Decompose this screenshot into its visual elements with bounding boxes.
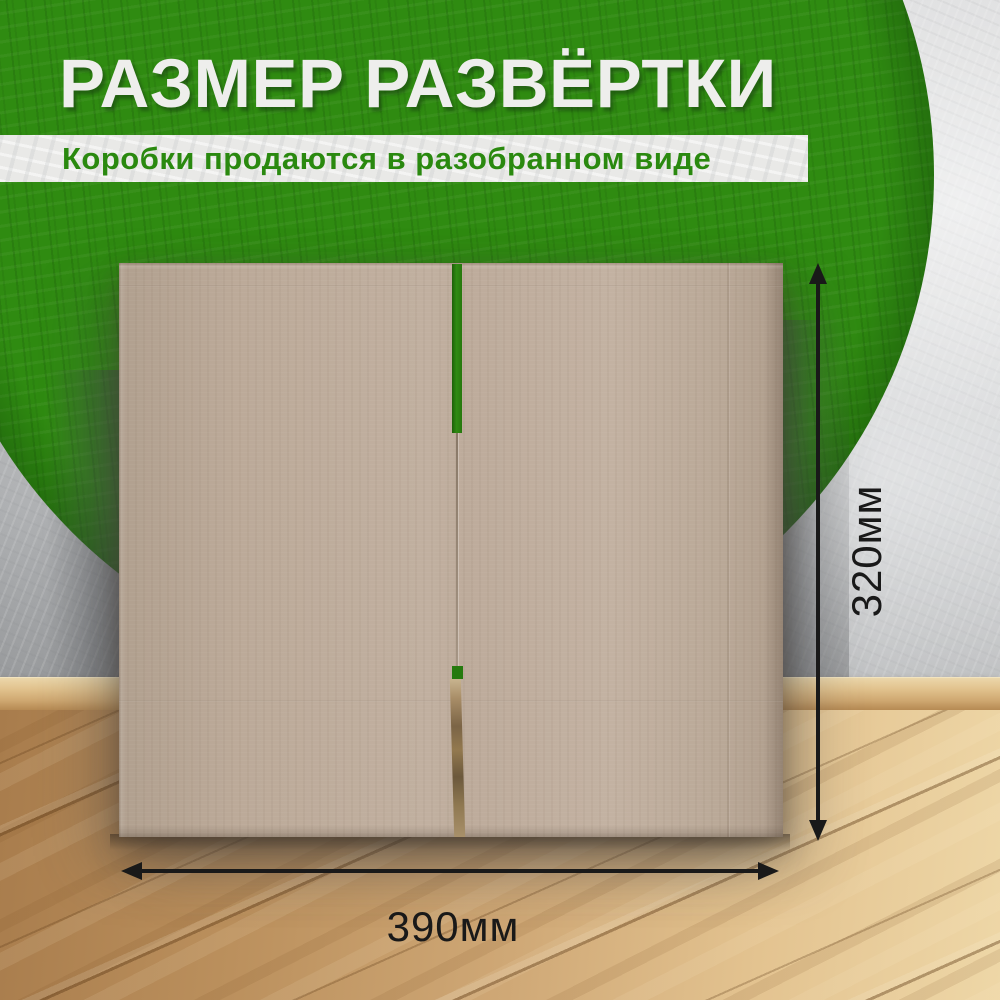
height-arrow-line [816, 279, 820, 825]
width-arrow-line [137, 869, 763, 873]
box-center-gap-notch [452, 666, 463, 679]
box-center-seam [456, 433, 458, 666]
arrow-right-icon [758, 862, 779, 880]
product-infographic: РАЗМЕР РАЗВЁРТКИ Коробки продаются в раз… [0, 0, 1000, 1000]
width-dimension-label: 390мм [387, 903, 520, 951]
box-vertical-crease [727, 263, 729, 837]
height-dimension-label: 320мм [843, 485, 891, 618]
width-dimension-arrow [121, 862, 779, 880]
arrow-down-icon [809, 820, 827, 841]
subtitle-text: Коробки продаются в разобранном виде [62, 141, 711, 177]
height-dimension-arrow [809, 263, 827, 841]
box-center-gap-upper [452, 264, 462, 433]
box-wall-shadow-left [46, 370, 120, 678]
box-horizontal-crease-top [119, 285, 783, 287]
page-title: РАЗМЕР РАЗВЁРТКИ [59, 49, 777, 118]
subtitle-banner: Коробки продаются в разобранном виде [0, 135, 808, 182]
